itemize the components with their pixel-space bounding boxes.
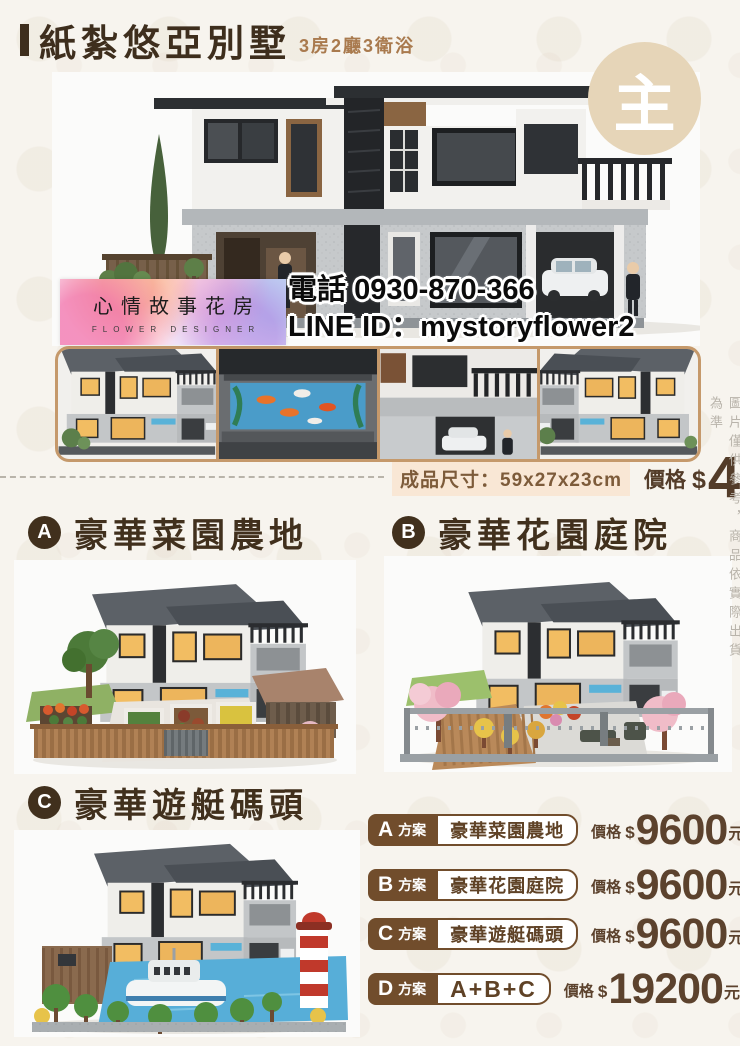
plan-c-label: 豪華遊艇碼頭 — [436, 918, 578, 950]
page-subtitle: 3房2廳3衛浴 — [299, 32, 415, 58]
page-title: 紙紮悠亞別墅 — [39, 25, 291, 62]
section-a-title: 豪華菜園農地 — [74, 508, 308, 557]
plan-d-badge: D方案 — [368, 973, 436, 1005]
logo: 心情故事花房 FLOWER DESIGNER — [60, 279, 286, 345]
flyer-page: 紙紮悠亞別墅 3房2廳3衛浴 主 — [0, 0, 740, 1046]
title-mark — [20, 24, 29, 56]
price-label: 價格 — [644, 464, 686, 494]
plan-d-label: A+B+C — [436, 973, 551, 1005]
photo-yacht-marina — [14, 830, 360, 1037]
plan-row-d: D方案 A+B+C 價格 $ 19200 元 — [368, 971, 736, 1007]
plan-row-c: C方案 豪華遊艇碼頭 價格 $ 9600 元 — [368, 916, 736, 952]
thumbnail-lit-villa-right — [537, 349, 698, 459]
section-a-badge: A — [28, 516, 61, 549]
main-circle-badge: 主 — [588, 42, 701, 155]
contact-phone-line: 電話 0930-870-366 — [288, 272, 634, 309]
plan-c-badge: C方案 — [368, 918, 436, 950]
plan-b-badge: B方案 — [368, 869, 436, 901]
thumbnail-koi-pond — [216, 349, 377, 459]
contact-info: 電話 0930-870-366 LINE ID：mystoryflower2 — [288, 272, 634, 346]
plan-d-price: 價格 $ 19200 元 — [564, 972, 740, 1006]
section-c-badge: C — [28, 786, 61, 819]
thumbnail-lit-villa-left — [58, 349, 216, 459]
phone-number: 0930-870-366 — [354, 274, 535, 306]
size-chip: 成品尺寸：59x27x23cm — [392, 461, 630, 496]
plan-row-b: B方案 豪華花園庭院 價格 $ 9600 元 — [368, 867, 736, 903]
thumbnail-strip — [55, 346, 701, 462]
price-currency: $ — [692, 466, 706, 495]
photo-vegetable-garden — [14, 560, 356, 774]
plan-b-price: 價格 $ 9600 元 — [591, 868, 740, 902]
plan-a-label: 豪華菜園農地 — [436, 814, 578, 846]
logo-tagline: FLOWER DESIGNER — [86, 325, 260, 334]
disclaimer-text: 圖片僅供參考，商品依實際出貨為準 — [706, 396, 740, 666]
thumbnail-garage-closeup — [377, 349, 538, 459]
plan-row-a: A方案 豪華菜園農地 價格 $ 9600 元 — [368, 812, 736, 848]
line-label: LINE ID： — [288, 311, 420, 343]
phone-label: 電話 — [288, 274, 346, 306]
section-c-title: 豪華遊艇碼頭 — [74, 778, 308, 827]
header: 紙紮悠亞別墅 3房2廳3衛浴 — [20, 24, 415, 62]
plan-b-label: 豪華花園庭院 — [436, 869, 578, 901]
plan-a-badge: A方案 — [368, 814, 436, 846]
photo-flower-garden — [384, 556, 732, 772]
plan-c-price: 價格 $ 9600 元 — [591, 917, 740, 951]
section-b-title: 豪華花園庭院 — [438, 508, 672, 557]
section-a-heading: A 豪華菜園農地 — [28, 508, 308, 557]
line-id: mystoryflower2 — [420, 311, 634, 343]
logo-name: 心情故事花房 — [85, 290, 261, 319]
section-b-heading: B 豪華花園庭院 — [392, 508, 672, 557]
dashed-divider — [0, 476, 384, 478]
section-b-badge: B — [392, 516, 425, 549]
main-circle-badge-text: 主 — [613, 54, 675, 144]
section-c-heading: C 豪華遊艇碼頭 — [28, 778, 308, 827]
contact-line-id-line: LINE ID：mystoryflower2 — [288, 309, 634, 346]
plan-a-price: 價格 $ 9600 元 — [591, 813, 740, 847]
